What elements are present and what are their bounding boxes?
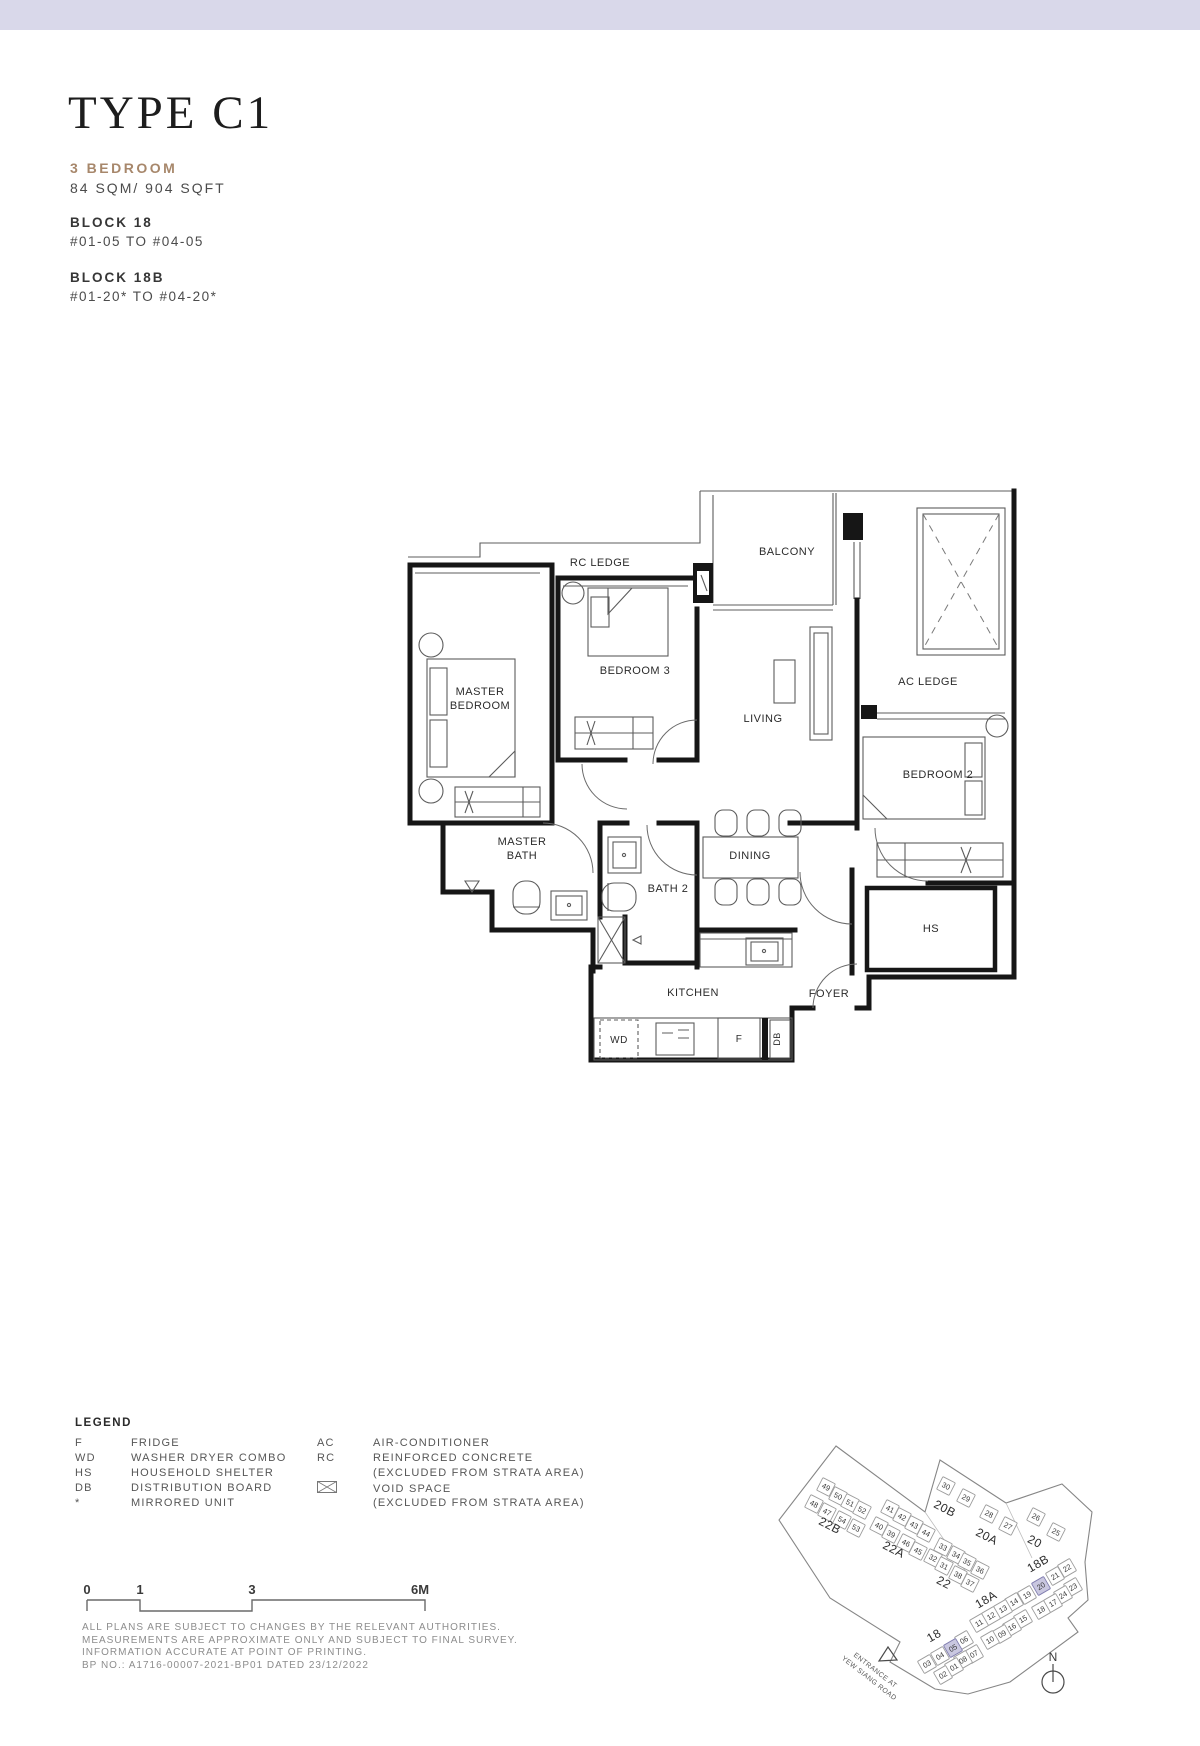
legend-abbr: F — [75, 1436, 131, 1451]
legend-row: FFRIDGE — [75, 1436, 286, 1451]
legend-desc: FRIDGE — [131, 1437, 180, 1449]
scale-bar-labels: 0136M — [83, 1582, 429, 1597]
entrance-marker: ENTRANCE ATYEW SIANG ROAD — [840, 1647, 904, 1702]
legend-desc: AIR-CONDITIONER — [373, 1437, 490, 1449]
room-label-master-bath: MASTERBATH — [498, 836, 547, 862]
legend-desc: DISTRIBUTION BOARD — [131, 1482, 272, 1494]
legend-row: *MIRRORED UNIT — [75, 1496, 286, 1511]
block-18-name: BLOCK 18 — [70, 215, 153, 230]
legend-column-1: FFRIDGEWDWASHER DRYER COMBOHSHOUSEHOLD S… — [75, 1436, 286, 1511]
top-accent-bar — [0, 0, 1200, 30]
siteplan-block-20: 20 — [1025, 1532, 1044, 1551]
legend-title: LEGEND — [75, 1417, 132, 1429]
legend-row: VOID SPACE — [317, 1481, 585, 1496]
legend-abbr: WD — [75, 1451, 131, 1466]
legend-row: RCREINFORCED CONCRETE — [317, 1451, 585, 1466]
unit-type-label: 3 BEDROOM — [70, 160, 177, 176]
room-label-master-bedroom: MASTERBEDROOM — [450, 686, 510, 712]
north-label: N — [1049, 1650, 1058, 1664]
room-label-dining: DINING — [729, 850, 771, 862]
siteplan-block-18B: 18B — [1025, 1552, 1052, 1576]
block-18b-floors: #01-20* TO #04-20* — [70, 289, 217, 304]
disclaimer-line: ALL PLANS ARE SUBJECT TO CHANGES BY THE … — [82, 1622, 518, 1635]
floor-plan-page: TYPE C1 3 BEDROOM 84 SQM/ 904 SQFT BLOCK… — [0, 0, 1200, 1746]
legend-row: (EXCLUDED FROM STRATA AREA) — [317, 1466, 585, 1481]
room-label-bath-2: BATH 2 — [648, 883, 689, 895]
legend-abbr: DB — [75, 1481, 131, 1496]
legend-row: HSHOUSEHOLD SHELTER — [75, 1466, 286, 1481]
scale-mark-1: 1 — [136, 1582, 143, 1597]
room-label-rc-ledge: RC LEDGE — [570, 557, 630, 569]
disclaimer-text: ALL PLANS ARE SUBJECT TO CHANGES BY THE … — [82, 1622, 518, 1672]
legend-desc: (EXCLUDED FROM STRATA AREA) — [373, 1467, 585, 1479]
unit-area-label: 84 SQM/ 904 SQFT — [70, 180, 226, 196]
legend-desc: MIRRORED UNIT — [131, 1497, 235, 1509]
site-key-plan: 4950515248475453414243444039464533343536… — [740, 1430, 1140, 1730]
room-label-wd: WD — [610, 1035, 628, 1046]
block-18-floors: #01-05 TO #04-05 — [70, 234, 204, 249]
legend-desc: (EXCLUDED FROM STRATA AREA) — [373, 1497, 585, 1509]
legend-abbr: HS — [75, 1466, 131, 1481]
room-label-ac-ledge: AC LEDGE — [898, 676, 958, 688]
disclaimer-line: MEASUREMENTS ARE APPROXIMATE ONLY AND SU… — [82, 1635, 518, 1648]
legend-abbr: RC — [317, 1451, 373, 1466]
room-label-balcony: BALCONY — [759, 546, 815, 558]
disclaimer-line: BP NO.: A1716-00007-2021-BP01 DATED 23/1… — [82, 1660, 518, 1673]
room-label-living: LIVING — [743, 713, 782, 725]
siteplan-block-20A: 20A — [973, 1525, 1000, 1548]
siteplan-unit-20: 20 — [1031, 1576, 1050, 1595]
room-label-foyer: FOYER — [809, 988, 849, 1000]
siteplan-unit-26: 26 — [1027, 1508, 1046, 1527]
void-space-icon — [317, 1481, 337, 1493]
disclaimer-line: INFORMATION ACCURATE AT POINT OF PRINTIN… — [82, 1647, 518, 1660]
siteplan-unit-25: 25 — [1047, 1523, 1066, 1542]
room-label-kitchen: KITCHEN — [667, 987, 719, 999]
room-label-fridge: F — [736, 1034, 743, 1045]
scale-mark-6M: 6M — [411, 1582, 429, 1597]
legend-row: (EXCLUDED FROM STRATA AREA) — [317, 1496, 585, 1511]
siteplan-unit-27: 27 — [999, 1517, 1018, 1536]
siteplan-unit-30: 30 — [937, 1477, 956, 1496]
legend-row: ACAIR-CONDITIONER — [317, 1436, 585, 1451]
page-title: TYPE C1 — [68, 86, 273, 140]
legend-abbr: * — [75, 1496, 131, 1511]
legend-row: DBDISTRIBUTION BOARD — [75, 1481, 286, 1496]
legend-row: WDWASHER DRYER COMBO — [75, 1451, 286, 1466]
legend-desc: WASHER DRYER COMBO — [131, 1452, 286, 1464]
legend-desc: HOUSEHOLD SHELTER — [131, 1467, 274, 1479]
room-label-bedroom-3: BEDROOM 3 — [600, 665, 671, 677]
floorplan-drawing: RC LEDGEBALCONYMASTERBEDROOMBEDROOM 3LIV… — [405, 487, 1020, 1069]
siteplan-block-18: 18 — [924, 1626, 943, 1645]
siteplan-unit-28: 28 — [980, 1505, 999, 1524]
scale-bar: 0136M — [70, 1560, 450, 1615]
room-label-db: DB — [772, 1032, 782, 1046]
legend-column-2: ACAIR-CONDITIONERRCREINFORCED CONCRETE(E… — [317, 1436, 585, 1511]
legend-abbr: AC — [317, 1436, 373, 1451]
legend-abbr — [317, 1481, 373, 1497]
room-label-hs: HS — [923, 923, 939, 935]
room-label-bedroom-2: BEDROOM 2 — [903, 769, 974, 781]
siteplan-block-20B: 20B — [931, 1497, 958, 1520]
block-18b-name: BLOCK 18B — [70, 270, 165, 285]
legend-desc: REINFORCED CONCRETE — [373, 1452, 533, 1464]
scale-mark-0: 0 — [83, 1582, 90, 1597]
void-space-hatch — [917, 508, 1005, 655]
siteplan-unit-29: 29 — [957, 1489, 976, 1508]
scale-mark-3: 3 — [248, 1582, 255, 1597]
legend-desc: VOID SPACE — [373, 1483, 451, 1495]
